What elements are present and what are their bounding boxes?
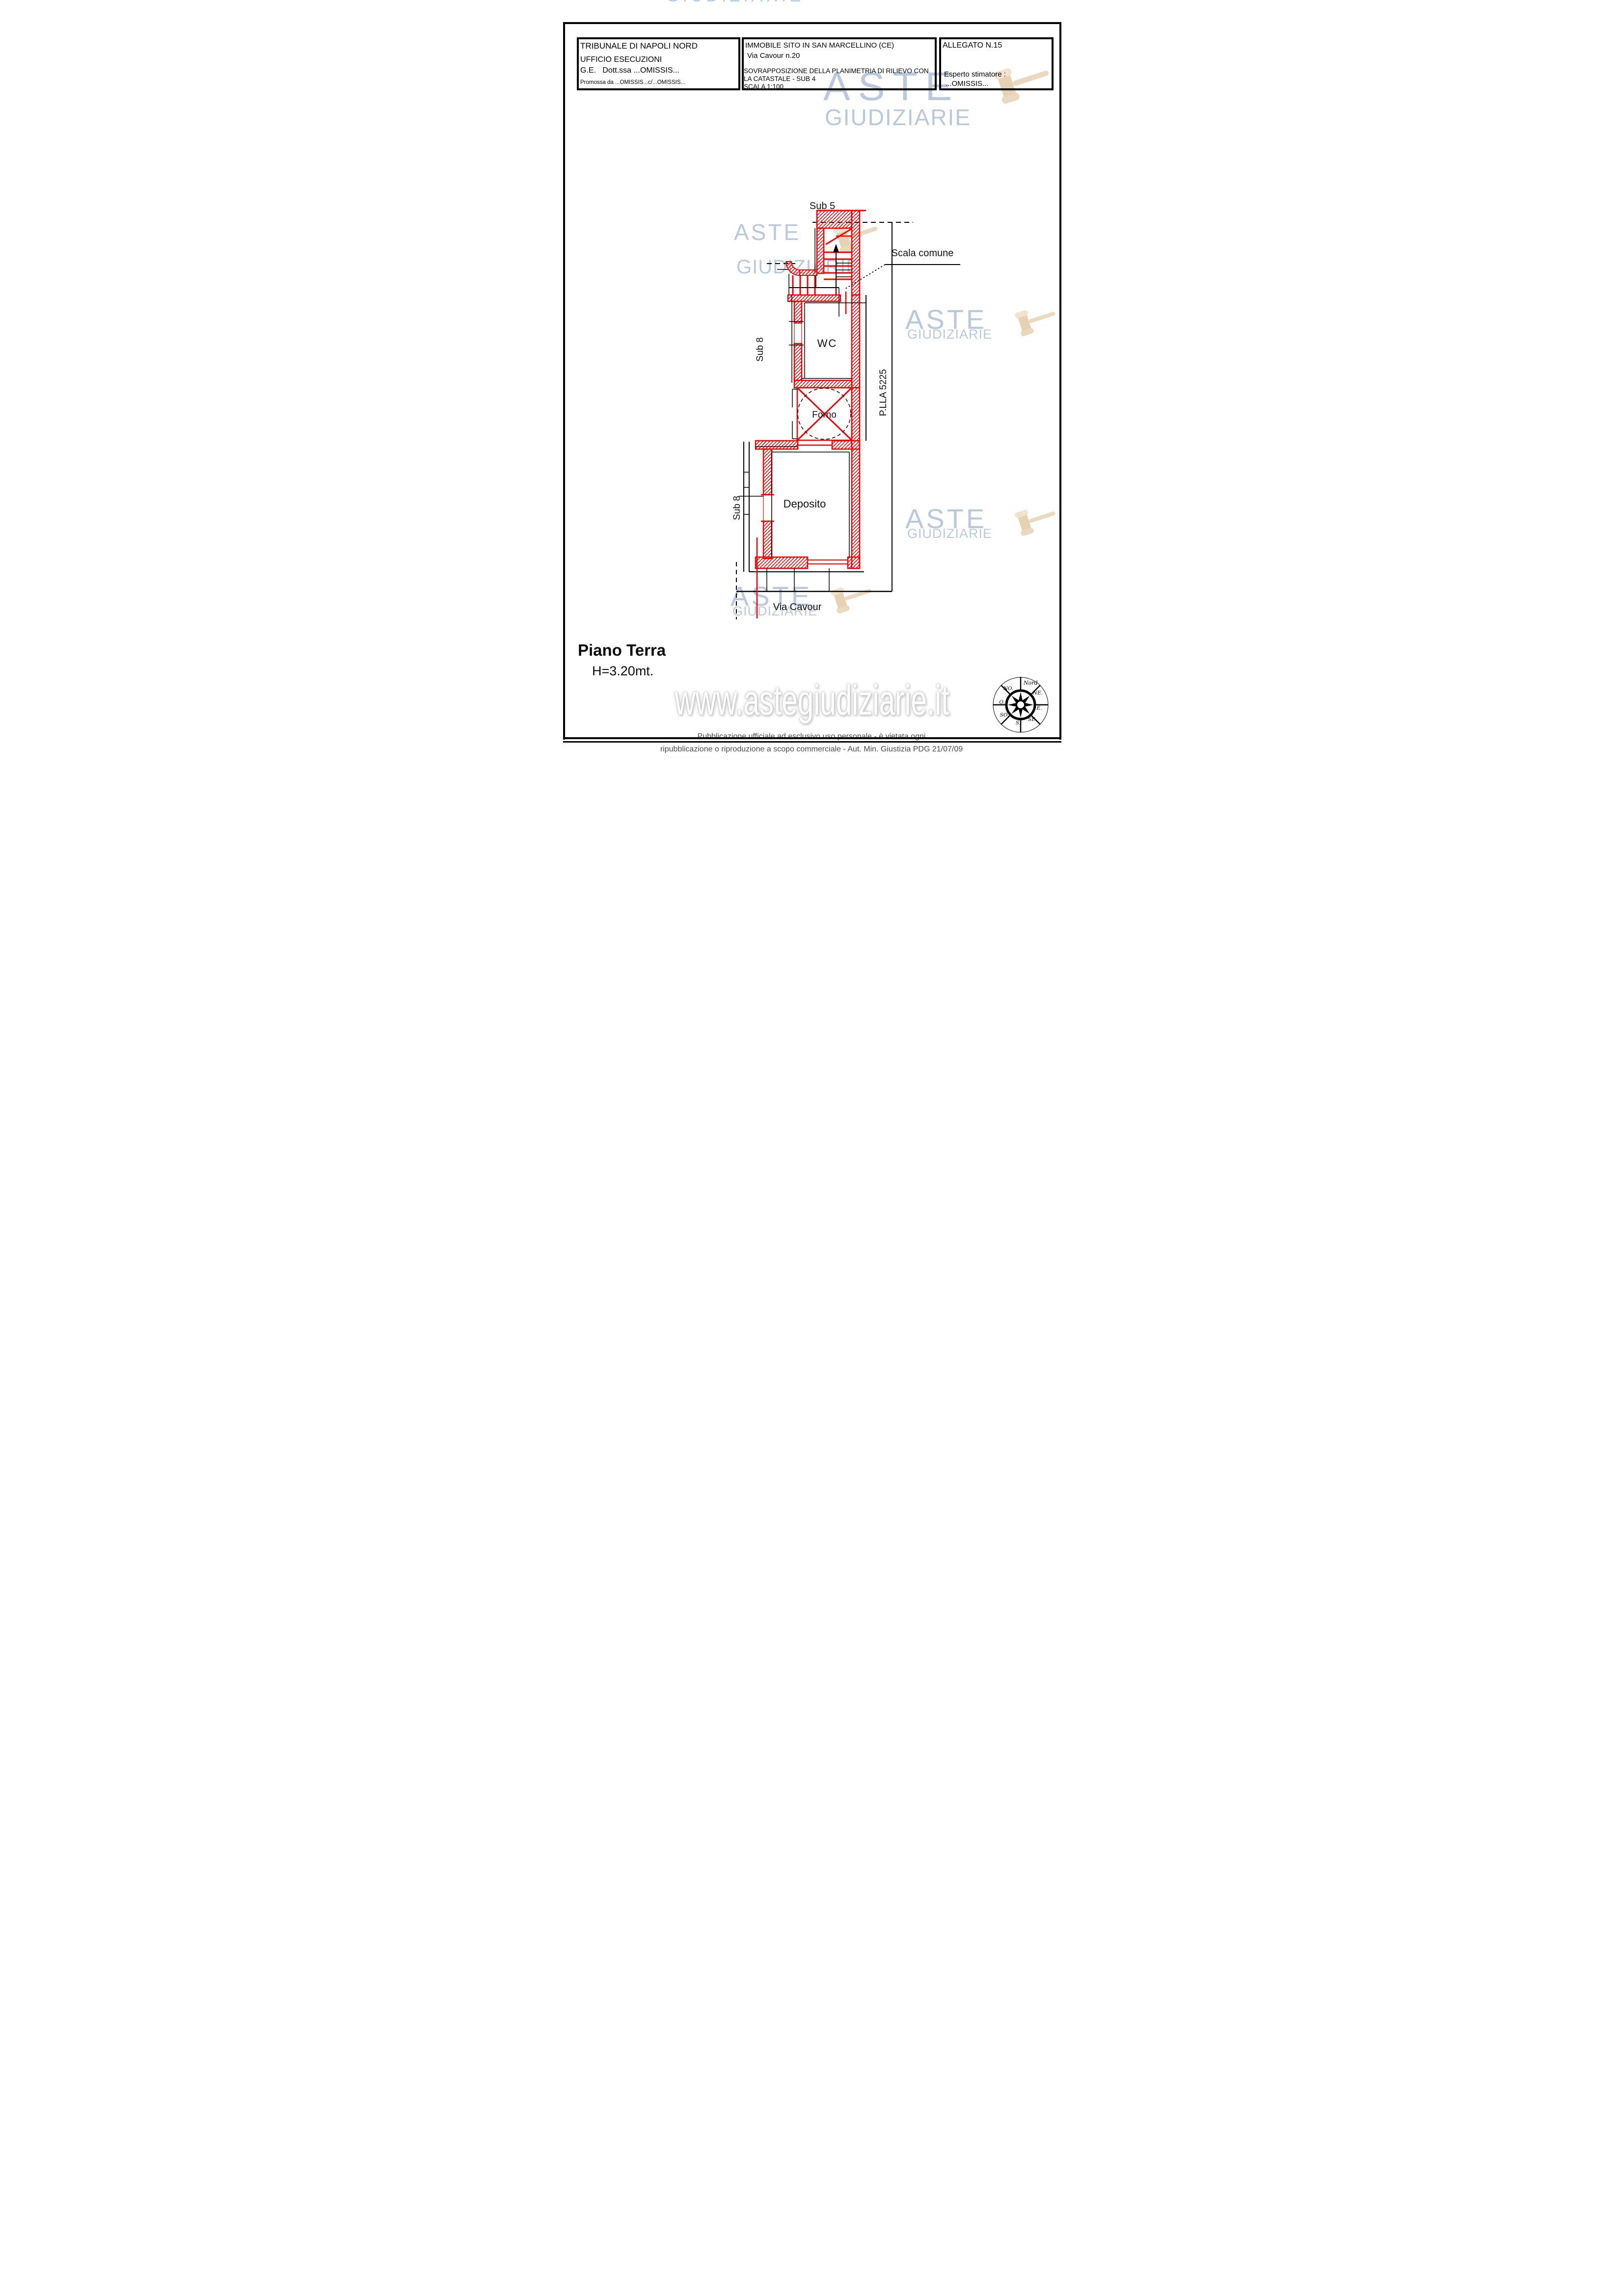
compass-se: SE. (1028, 717, 1037, 722)
label-forno: Forno (812, 410, 837, 420)
footer-line-1: Pubblicazione ufficiale ad esclusivo uso… (541, 732, 1082, 741)
deposito-door-opening (808, 560, 848, 564)
compass-north: Nord (1023, 680, 1038, 686)
compass-rose: Nord NO. NE. O. E. SO. SE. S. (993, 677, 1048, 732)
deposito-top-opening (798, 441, 832, 449)
compass-south: S. (1016, 720, 1021, 726)
label-deposito: Deposito (784, 498, 826, 510)
stair-direction-arrow (833, 244, 839, 252)
page-bottom-border-2 (563, 741, 1061, 743)
document-page: GIUDIZIARIE ASTE GIUDIZIARIE ASTE GIUDIZ… (541, 0, 1082, 765)
scala-comune-leader (844, 265, 960, 290)
label-sub8-upper: Sub 8 (755, 337, 765, 362)
compass-nw: NO. (1003, 686, 1014, 692)
compass-ne: NE. (1032, 690, 1043, 696)
footer-line-2: ripubblicazione o riproduzione a scopo c… (541, 745, 1082, 754)
watermark-url: www.astegiudiziarie.it (675, 676, 949, 725)
page-bottom-border-1 (563, 737, 1061, 739)
compass-east: E. (1036, 705, 1042, 711)
deposito-window-opening (761, 495, 774, 521)
label-via-cavour: Via Cavour (773, 602, 822, 613)
floor-title: Piano Terra (578, 641, 666, 660)
label-scala-comune: Scala comune (892, 248, 954, 259)
floor-height: H=3.20mt. (592, 664, 653, 679)
label-sub5: Sub 5 (810, 201, 835, 212)
curved-wall (786, 262, 817, 275)
label-wc: WC (817, 337, 838, 349)
wc-window-opening (794, 323, 802, 344)
forno-catastal-brackets (792, 389, 797, 439)
compass-sw: SO. (1000, 712, 1009, 718)
compass-west: O. (999, 699, 1004, 705)
label-parcel: P.LLA 5225 (878, 369, 889, 416)
label-sub8-lower: Sub 8 (732, 496, 742, 520)
